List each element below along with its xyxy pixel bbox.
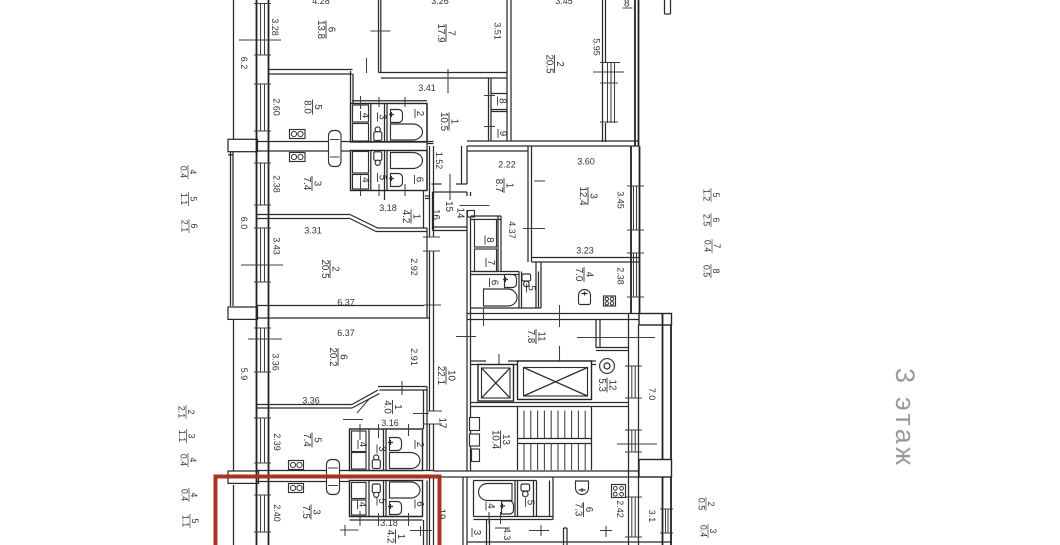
svg-text:0.4: 0.4 — [699, 525, 709, 537]
svg-text:6.37: 6.37 — [337, 298, 355, 308]
svg-text:5: 5 — [190, 519, 200, 524]
svg-text:5: 5 — [377, 175, 388, 181]
svg-text:4: 4 — [360, 177, 371, 183]
svg-text:6: 6 — [711, 218, 721, 223]
svg-text:2.5: 2.5 — [702, 214, 712, 226]
svg-text:1: 1 — [395, 534, 406, 539]
svg-text:0.5: 0.5 — [697, 498, 707, 510]
svg-text:20.5: 20.5 — [319, 259, 330, 279]
svg-text:3.60: 3.60 — [577, 157, 595, 167]
svg-text:7.8: 7.8 — [525, 330, 536, 344]
svg-text:6.2: 6.2 — [239, 57, 249, 70]
svg-text:4.28: 4.28 — [312, 0, 330, 6]
svg-text:1: 1 — [411, 214, 422, 219]
svg-text:7.0: 7.0 — [573, 268, 584, 282]
svg-text:3: 3 — [471, 530, 482, 536]
svg-text:7.3: 7.3 — [573, 503, 584, 517]
svg-text:7: 7 — [446, 30, 457, 35]
svg-text:3.26: 3.26 — [431, 0, 449, 6]
svg-text:9: 9 — [497, 131, 508, 136]
svg-text:3: 3 — [312, 181, 323, 187]
svg-text:2.60: 2.60 — [272, 98, 282, 116]
svg-text:1.2: 1.2 — [702, 189, 712, 201]
svg-text:5: 5 — [312, 437, 323, 443]
svg-text:3.36: 3.36 — [271, 353, 281, 371]
svg-text:10.5: 10.5 — [438, 112, 449, 132]
svg-text:3: 3 — [376, 446, 387, 452]
svg-text:10: 10 — [446, 370, 457, 381]
svg-text:3: 3 — [588, 193, 599, 199]
svg-text:4.2: 4.2 — [385, 530, 396, 544]
svg-text:1.52: 1.52 — [434, 152, 444, 170]
svg-text:4.2: 4.2 — [400, 210, 411, 224]
svg-text:3: 3 — [187, 434, 197, 439]
svg-text:20.2: 20.2 — [327, 347, 338, 366]
svg-text:1: 1 — [392, 404, 403, 409]
svg-text:3: 3 — [311, 509, 322, 515]
svg-text:2.92: 2.92 — [409, 258, 419, 276]
svg-text:4: 4 — [189, 493, 199, 498]
svg-text:6: 6 — [583, 507, 594, 513]
svg-text:3.41: 3.41 — [418, 83, 436, 93]
svg-text:8: 8 — [711, 269, 721, 274]
svg-text:4: 4 — [357, 442, 368, 448]
svg-text:11: 11 — [536, 331, 547, 341]
svg-text:12.4: 12.4 — [577, 186, 588, 206]
svg-text:2.40: 2.40 — [272, 504, 282, 522]
svg-text:3.18: 3.18 — [379, 203, 397, 213]
svg-text:3.23: 3.23 — [576, 246, 594, 256]
svg-text:1: 1 — [449, 119, 460, 124]
svg-text:1.1: 1.1 — [177, 430, 187, 442]
svg-text:7.4: 7.4 — [301, 177, 312, 191]
svg-text:3.28: 3.28 — [270, 18, 280, 36]
svg-text:2: 2 — [186, 410, 196, 415]
svg-text:3.43: 3.43 — [272, 237, 282, 255]
svg-text:4: 4 — [360, 113, 371, 119]
svg-text:0.4: 0.4 — [180, 489, 190, 501]
svg-text:4: 4 — [584, 272, 595, 278]
svg-text:8.0: 8.0 — [302, 100, 313, 114]
svg-text:7.0: 7.0 — [647, 388, 657, 401]
svg-text:13: 13 — [500, 434, 511, 445]
svg-text:17: 17 — [437, 418, 448, 429]
svg-text:16: 16 — [430, 209, 441, 220]
svg-text:6: 6 — [414, 501, 425, 507]
svg-text:8: 8 — [497, 98, 508, 104]
svg-text:4.0: 4.0 — [382, 400, 393, 414]
svg-text:2: 2 — [414, 111, 425, 116]
svg-text:8.7: 8.7 — [493, 179, 504, 193]
svg-text:5: 5 — [711, 193, 721, 198]
svg-text:1: 1 — [504, 183, 515, 188]
svg-text:3.45: 3.45 — [555, 0, 573, 6]
svg-text:0.4: 0.4 — [179, 166, 189, 178]
svg-text:2.38: 2.38 — [616, 267, 626, 285]
svg-text:6: 6 — [189, 224, 199, 229]
svg-text:6.0: 6.0 — [239, 217, 249, 230]
svg-text:6: 6 — [489, 280, 500, 286]
svg-text:4.3: 4.3 — [502, 528, 512, 541]
svg-text:3.18: 3.18 — [380, 518, 398, 528]
svg-text:6.37: 6.37 — [337, 328, 355, 338]
svg-text:2: 2 — [554, 61, 565, 66]
svg-text:0.5: 0.5 — [702, 265, 712, 277]
svg-text:15: 15 — [443, 201, 454, 212]
svg-text:6: 6 — [326, 27, 337, 33]
svg-text:5: 5 — [376, 498, 387, 504]
svg-text:3.45: 3.45 — [616, 191, 626, 209]
svg-text:6: 6 — [338, 354, 349, 360]
svg-text:7.5: 7.5 — [300, 505, 311, 519]
svg-text:2: 2 — [330, 266, 341, 271]
svg-text:7: 7 — [712, 244, 722, 249]
svg-text:0.4: 0.4 — [179, 454, 189, 466]
svg-text:3: 3 — [377, 114, 388, 120]
svg-text:2.1: 2.1 — [177, 406, 187, 418]
svg-text:6: 6 — [414, 177, 425, 183]
svg-text:1.1: 1.1 — [181, 515, 191, 527]
svg-text:5: 5 — [525, 500, 536, 506]
svg-text:5.3: 5.3 — [596, 378, 607, 392]
svg-text:5: 5 — [312, 104, 323, 110]
svg-text:5.9: 5.9 — [239, 368, 249, 381]
svg-text:3.16: 3.16 — [381, 418, 399, 428]
svg-text:4: 4 — [357, 502, 368, 508]
svg-text:3: 3 — [708, 529, 718, 534]
svg-text:7.4: 7.4 — [301, 433, 312, 447]
svg-text:2.38: 2.38 — [272, 175, 282, 193]
svg-text:13.8: 13.8 — [315, 20, 326, 40]
svg-text:2.1: 2.1 — [180, 220, 190, 232]
svg-text:3.36: 3.36 — [302, 396, 320, 406]
svg-text:10.4: 10.4 — [490, 430, 501, 450]
svg-text:2.42: 2.42 — [615, 500, 625, 518]
svg-text:17.9: 17.9 — [435, 23, 446, 42]
svg-text:4.37: 4.37 — [507, 221, 517, 239]
svg-text:7: 7 — [485, 260, 496, 265]
svg-text:20.5: 20.5 — [544, 54, 555, 74]
svg-text:3 этаж: 3 этаж — [890, 368, 920, 465]
svg-text:4: 4 — [188, 170, 198, 175]
svg-text:3.51: 3.51 — [493, 22, 503, 40]
svg-text:2.22: 2.22 — [498, 160, 516, 170]
svg-text:0.4: 0.4 — [703, 240, 713, 252]
svg-text:2.91: 2.91 — [409, 348, 419, 366]
svg-text:5: 5 — [526, 285, 537, 291]
svg-text:2: 2 — [414, 442, 425, 447]
svg-text:14: 14 — [455, 208, 466, 219]
svg-text:3.31: 3.31 — [304, 226, 322, 236]
svg-text:1.1: 1.1 — [179, 193, 189, 205]
svg-text:2.39: 2.39 — [272, 433, 282, 451]
svg-text:2: 2 — [706, 502, 716, 507]
svg-text:5.95: 5.95 — [592, 38, 602, 56]
svg-text:8: 8 — [484, 237, 495, 243]
svg-text:22.1: 22.1 — [435, 366, 446, 385]
svg-text:5: 5 — [189, 197, 199, 202]
svg-text:4: 4 — [188, 458, 198, 463]
svg-text:12: 12 — [607, 380, 618, 391]
svg-text:4: 4 — [485, 503, 496, 509]
svg-text:3.1: 3.1 — [647, 510, 657, 523]
